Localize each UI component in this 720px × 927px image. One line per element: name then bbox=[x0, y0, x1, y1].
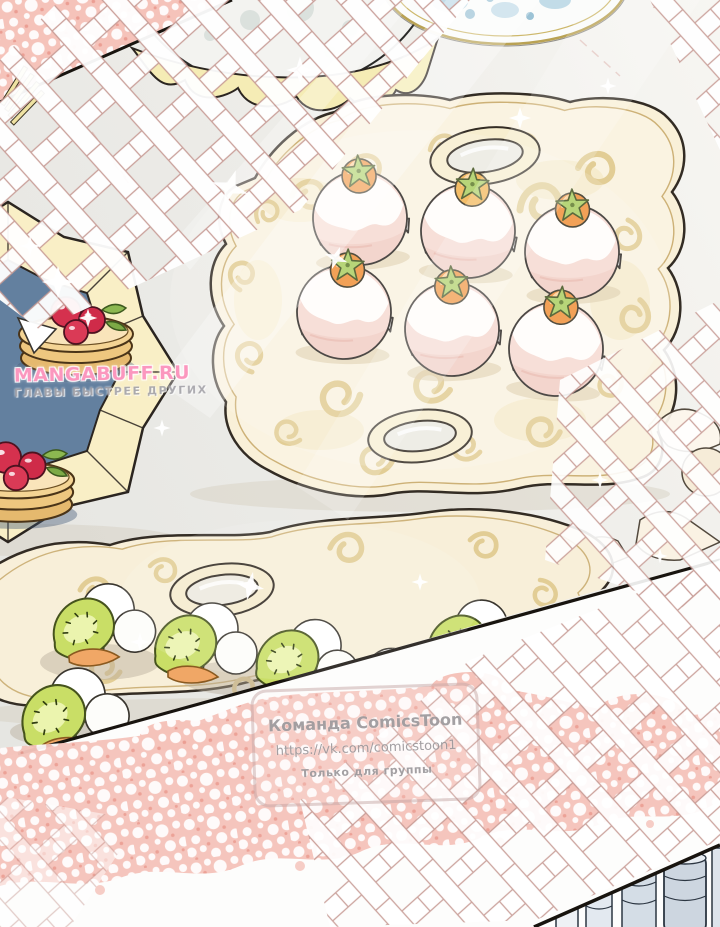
panel-artwork bbox=[0, 0, 720, 927]
pancake-stack bbox=[0, 442, 77, 529]
webtoon-panel: MANGABUFF.RU ГЛАВЫ БЫСТРЕЕ ДРУГИХ Команд… bbox=[0, 0, 720, 927]
